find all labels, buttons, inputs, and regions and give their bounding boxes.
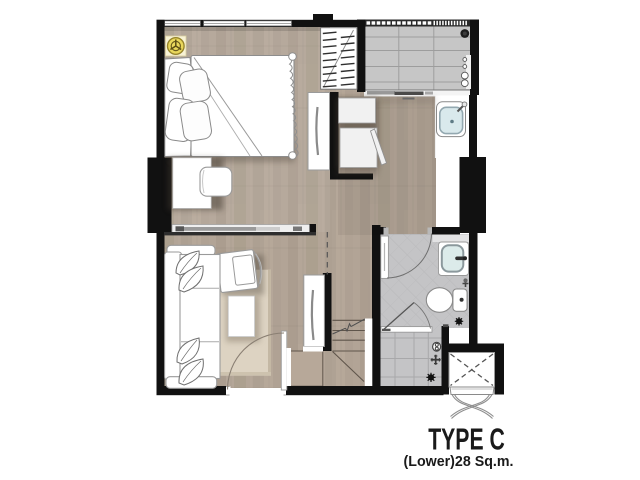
svg-text:TYPE C: TYPE C	[428, 421, 505, 456]
svg-text:(Lower)28 Sq.m.: (Lower)28 Sq.m.	[404, 454, 514, 470]
